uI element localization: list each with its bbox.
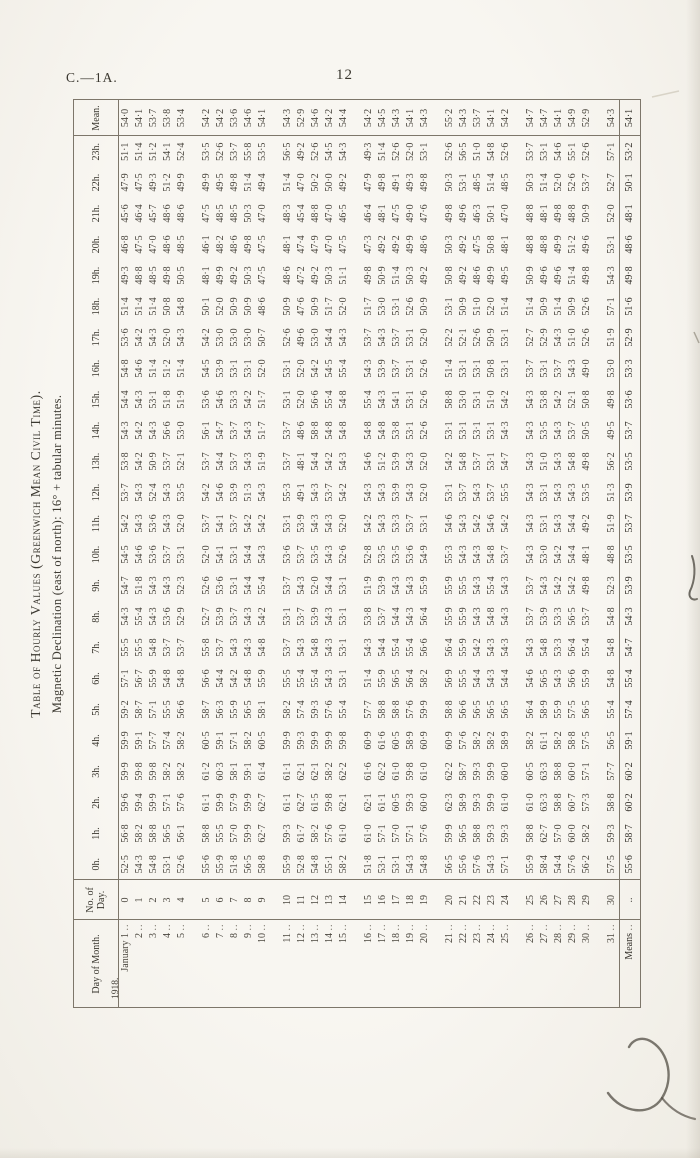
- value-cell: 53·6: [147, 508, 161, 539]
- rotated-table-region: Table of Hourly Values (Greenwich Mean C…: [25, 99, 641, 1009]
- value-cell: 52·0: [418, 446, 432, 477]
- value-cell: 51·4: [242, 167, 256, 198]
- value-cell: 47·5: [337, 229, 351, 260]
- day-label: 20 ..: [418, 920, 432, 1008]
- group-gap: [189, 100, 200, 1008]
- rotated-table-inner: Table of Hourly Values (Greenwich Mean C…: [25, 99, 641, 1009]
- value-cell: 54·3: [418, 100, 432, 136]
- means-value-cell: 51·6: [620, 291, 641, 322]
- value-cell: 45·6: [119, 198, 134, 229]
- day-label: 22 ..: [457, 920, 471, 1008]
- value-cell: 59·9: [323, 725, 337, 756]
- value-cell: 54·3: [161, 508, 175, 539]
- value-cell: 49·3: [147, 167, 161, 198]
- value-cell: 51·4: [133, 136, 147, 167]
- value-cell: 54·1: [133, 100, 147, 136]
- column-header: 8h.: [74, 601, 119, 632]
- value-cell: 52·6: [200, 570, 214, 601]
- value-cell: 46·1: [200, 229, 214, 260]
- value-cell: 62·7: [256, 818, 270, 849]
- day-label: 15 ..: [337, 920, 351, 1008]
- means-value-cell: 53·5: [620, 446, 641, 477]
- pencil-mark: [652, 91, 679, 97]
- value-cell: 51·4: [175, 353, 189, 384]
- leader-dots: ..: [486, 924, 497, 931]
- value-cell: 54·3: [499, 632, 513, 663]
- value-cell: 48·1: [281, 229, 295, 260]
- value-cell: 53·3: [552, 601, 566, 632]
- value-cell: 53·6: [147, 539, 161, 570]
- value-cell: 55·4: [337, 694, 351, 725]
- value-cell: 56·5: [499, 694, 513, 725]
- means-value-cell: 48·1: [620, 198, 641, 229]
- value-cell: 55·9: [443, 570, 457, 601]
- value-cell: 49·0: [404, 198, 418, 229]
- no-of-day: 22: [471, 880, 485, 920]
- leader-dots: ..: [419, 924, 430, 931]
- value-cell: 53·7: [161, 446, 175, 477]
- value-cell: 58·8: [552, 756, 566, 787]
- value-cell: 51·3: [242, 477, 256, 508]
- value-cell: 53·1: [281, 508, 295, 539]
- value-cell: 50·7: [256, 322, 270, 353]
- value-cell: 52·3: [175, 570, 189, 601]
- value-cell: 59·2: [119, 694, 134, 725]
- value-cell: 54·8: [337, 415, 351, 446]
- means-value-cell: 49·8: [620, 260, 641, 291]
- value-cell: 53·7: [390, 322, 404, 353]
- value-cell: 54·7: [499, 446, 513, 477]
- value-cell: 61·0: [524, 787, 538, 818]
- value-cell: 53·1: [147, 384, 161, 415]
- value-cell: 54·3: [471, 570, 485, 601]
- value-cell: 56·8: [119, 818, 134, 849]
- day-row: 7 ..655·955·559·960·359·156·354·453·753·…: [214, 100, 228, 1008]
- value-cell: 54·3: [281, 100, 295, 136]
- leader-dots: ..: [472, 924, 483, 931]
- value-cell: 53·7: [281, 570, 295, 601]
- no-of-day: 30: [605, 880, 620, 920]
- value-cell: 46·4: [133, 198, 147, 229]
- value-cell: 49·6: [552, 260, 566, 291]
- day-row: 6 ..555·658·861·161·260·558·756·655·852·…: [200, 100, 214, 1008]
- value-cell: 46·5: [337, 198, 351, 229]
- value-cell: 51·4: [566, 260, 580, 291]
- value-cell: 52·1: [566, 384, 580, 415]
- day-label: 23 ..: [471, 920, 485, 1008]
- no-of-day: 23: [485, 880, 499, 920]
- value-cell: 56·5: [457, 136, 471, 167]
- value-cell: 56·4: [566, 632, 580, 663]
- day-row: 10 ..958·862·762·761·460·558·155·954·854…: [256, 100, 270, 1008]
- value-cell: 51·4: [524, 291, 538, 322]
- day-row: 21 ..2056·559·962·362·260·958·856·956·45…: [443, 100, 457, 1008]
- value-cell: 56·5: [605, 725, 620, 756]
- value-cell: 53·0: [214, 322, 228, 353]
- value-cell: 55·4: [337, 353, 351, 384]
- value-cell: 46·8: [119, 229, 134, 260]
- value-cell: 48·5: [175, 229, 189, 260]
- value-cell: 54·8: [309, 632, 323, 663]
- value-cell: 56·4: [404, 663, 418, 694]
- no-of-day: 20: [443, 880, 457, 920]
- value-cell: 54·1: [552, 100, 566, 136]
- value-cell: 48·5: [228, 198, 242, 229]
- value-cell: 53·1: [337, 663, 351, 694]
- value-cell: 54·2: [552, 570, 566, 601]
- means-value-cell: 54·1: [620, 100, 641, 136]
- column-header: Mean.: [74, 100, 119, 136]
- value-cell: 54·8: [147, 632, 161, 663]
- value-cell: 49·9: [404, 229, 418, 260]
- value-cell: 54·3: [295, 570, 309, 601]
- day-label: 10 ..: [256, 920, 270, 1008]
- value-cell: 54·8: [605, 632, 620, 663]
- leader-dots: ..: [134, 924, 145, 931]
- value-cell: 50·9: [538, 291, 552, 322]
- value-cell: 57·1: [119, 663, 134, 694]
- value-cell: 48·8: [524, 198, 538, 229]
- column-header: 22h.: [74, 167, 119, 198]
- value-cell: 48·8: [538, 229, 552, 260]
- value-cell: 56·6: [200, 663, 214, 694]
- no-of-day: 25: [524, 880, 538, 920]
- value-cell: 59·9: [443, 818, 457, 849]
- value-cell: 54·3: [323, 539, 337, 570]
- value-cell: 54·3: [552, 322, 566, 353]
- value-cell: 53·7: [524, 570, 538, 601]
- value-cell: 54·7: [538, 100, 552, 136]
- day-label: 30 ..: [580, 920, 594, 1008]
- value-cell: 50·9: [418, 291, 432, 322]
- value-cell: 58·8: [200, 818, 214, 849]
- value-cell: 60·9: [362, 725, 376, 756]
- value-cell: 53·7: [580, 167, 594, 198]
- value-cell: 53·7: [295, 601, 309, 632]
- value-cell: 59·9: [485, 756, 499, 787]
- leader-dots: ..: [338, 924, 349, 931]
- value-cell: 53·6: [281, 539, 295, 570]
- value-cell: 49·8: [580, 570, 594, 601]
- value-cell: 58·7: [200, 694, 214, 725]
- value-cell: 59·3: [309, 694, 323, 725]
- value-cell: 48·2: [214, 229, 228, 260]
- value-cell: 57·1: [605, 291, 620, 322]
- value-cell: 59·8: [147, 756, 161, 787]
- value-cell: 54·3: [309, 508, 323, 539]
- value-cell: 48·6: [175, 198, 189, 229]
- value-cell: 58·2: [323, 756, 337, 787]
- value-cell: 54·3: [119, 601, 134, 632]
- value-cell: 58·9: [404, 725, 418, 756]
- value-cell: 50·9: [457, 291, 471, 322]
- value-cell: 49·9: [485, 260, 499, 291]
- value-cell: 60·7: [566, 787, 580, 818]
- value-cell: 57·6: [175, 787, 189, 818]
- value-cell: 62·2: [376, 756, 390, 787]
- value-cell: 53·7: [228, 415, 242, 446]
- value-cell: 56·2: [605, 446, 620, 477]
- value-cell: 55·4: [390, 632, 404, 663]
- day-row: 30 ..2956·258·257·357·157·556·555·955·45…: [580, 100, 594, 1008]
- value-cell: 53·7: [281, 415, 295, 446]
- means-value-cell: 60·2: [620, 787, 641, 818]
- value-cell: 53·8: [362, 601, 376, 632]
- value-cell: 52·0: [295, 384, 309, 415]
- value-cell: 58·2: [175, 756, 189, 787]
- value-cell: 53·9: [390, 446, 404, 477]
- value-cell: 53·0: [538, 539, 552, 570]
- value-cell: 54·5: [323, 353, 337, 384]
- value-cell: 52·6: [499, 136, 513, 167]
- value-cell: 47·5: [200, 198, 214, 229]
- day-label: 26 ..: [524, 920, 538, 1008]
- leader-dots: ..: [525, 924, 536, 931]
- no-of-day: 19: [418, 880, 432, 920]
- value-cell: 54·3: [133, 477, 147, 508]
- value-cell: 48·6: [256, 291, 270, 322]
- value-cell: 54·4: [552, 849, 566, 880]
- value-cell: 50·8: [485, 353, 499, 384]
- scanned-document-page: { "page": { "doc_ref": "C.—1A.", "page_n…: [0, 0, 700, 1158]
- value-cell: 49·3: [119, 260, 134, 291]
- value-cell: 57·6: [418, 818, 432, 849]
- means-value-cell: 53·9: [620, 477, 641, 508]
- scan-edge-shadow: [0, 1148, 700, 1158]
- column-header: 15h.: [74, 384, 119, 415]
- value-cell: 54·3: [362, 353, 376, 384]
- value-cell: 57·1: [605, 136, 620, 167]
- value-cell: 56·2: [580, 849, 594, 880]
- value-cell: 47·0: [323, 198, 337, 229]
- value-cell: 51·8: [161, 384, 175, 415]
- value-cell: 54·3: [376, 477, 390, 508]
- value-cell: 58·1: [256, 694, 270, 725]
- value-cell: 62·7: [256, 787, 270, 818]
- no-of-day: 17: [390, 880, 404, 920]
- value-cell: 57·6: [323, 818, 337, 849]
- value-cell: 48·1: [499, 229, 513, 260]
- column-header: 4h.: [74, 725, 119, 756]
- day-label: 17 ..: [376, 920, 390, 1008]
- value-cell: 58·9: [457, 787, 471, 818]
- value-cell: 54·4: [566, 508, 580, 539]
- value-cell: 54·2: [499, 384, 513, 415]
- column-header: 5h.: [74, 694, 119, 725]
- value-cell: 53·3: [390, 508, 404, 539]
- value-cell: 52·9: [295, 100, 309, 136]
- value-cell: 52·0: [214, 291, 228, 322]
- value-cell: 54·4: [566, 539, 580, 570]
- value-cell: 54·8: [175, 663, 189, 694]
- day-label: 2 ..: [133, 920, 147, 1008]
- value-cell: 55·9: [214, 849, 228, 880]
- value-cell: 50·1: [200, 291, 214, 322]
- value-cell: 49·2: [228, 260, 242, 291]
- value-cell: 50·3: [242, 260, 256, 291]
- day-row: 24 ..2354·359·359·959·958·256·554·354·35…: [485, 100, 499, 1008]
- hourly-values-table: Day of Month.No. of Day.0h.1h.2h.3h.4h.5…: [73, 100, 641, 1009]
- leader-dots: ..: [324, 924, 335, 931]
- value-cell: 54·3: [147, 570, 161, 601]
- value-cell: 55·5: [457, 570, 471, 601]
- value-cell: 59·9: [119, 756, 134, 787]
- value-cell: 49·9: [200, 167, 214, 198]
- day-label: 19 ..: [404, 920, 418, 1008]
- leader-dots: ..: [176, 924, 187, 931]
- value-cell: 54·8: [566, 446, 580, 477]
- handwritten-mark: [689, 556, 697, 600]
- leader-dots: ..: [624, 924, 635, 931]
- value-cell: 53·9: [376, 570, 390, 601]
- value-cell: 53·7: [295, 539, 309, 570]
- value-cell: 53·1: [443, 415, 457, 446]
- value-cell: 57·5: [580, 725, 594, 756]
- value-cell: 54·3: [457, 539, 471, 570]
- day-row: 23 ..2257·658·859·359·358·256·554·454·25…: [471, 100, 485, 1008]
- value-cell: 51·4: [133, 291, 147, 322]
- value-cell: 48·1: [200, 260, 214, 291]
- value-cell: 52·7: [524, 322, 538, 353]
- column-header: 21h.: [74, 198, 119, 229]
- column-header: 10h.: [74, 539, 119, 570]
- value-cell: 53·7: [485, 477, 499, 508]
- no-of-day: 3: [161, 880, 175, 920]
- value-cell: 61·2: [200, 756, 214, 787]
- value-cell: 57·1: [580, 756, 594, 787]
- value-cell: 60·0: [566, 756, 580, 787]
- value-cell: 49·4: [256, 167, 270, 198]
- value-cell: 58·2: [242, 725, 256, 756]
- value-cell: 61·1: [538, 725, 552, 756]
- day-row: 22 ..2155·656·558·958·757·656·655·555·95…: [457, 100, 471, 1008]
- value-cell: 54·9: [566, 100, 580, 136]
- value-cell: 52·6: [418, 384, 432, 415]
- value-cell: 53·1: [471, 384, 485, 415]
- column-header: 1h.: [74, 818, 119, 849]
- value-cell: 52·1: [457, 322, 471, 353]
- value-cell: 59·9: [281, 725, 295, 756]
- value-cell: 57·4: [161, 725, 175, 756]
- value-cell: 56·5: [485, 694, 499, 725]
- value-cell: 54·3: [524, 415, 538, 446]
- column-header: 2h.: [74, 787, 119, 818]
- value-cell: 53·9: [295, 508, 309, 539]
- value-cell: 54·3: [119, 415, 134, 446]
- value-cell: 52·9: [538, 322, 552, 353]
- value-cell: 53·0: [376, 291, 390, 322]
- value-cell: 53·1: [404, 322, 418, 353]
- handwritten-mark: [608, 1039, 669, 1110]
- value-cell: 59·8: [404, 756, 418, 787]
- value-cell: 49·8: [242, 229, 256, 260]
- value-cell: 47·0: [147, 229, 161, 260]
- value-cell: 45·7: [147, 198, 161, 229]
- value-cell: 54·8: [256, 632, 270, 663]
- value-cell: 54·8: [457, 446, 471, 477]
- value-cell: 48·6: [161, 229, 175, 260]
- value-cell: 54·3: [457, 100, 471, 136]
- value-cell: 54·8: [485, 136, 499, 167]
- value-cell: 54·4: [309, 446, 323, 477]
- value-cell: 58·1: [228, 756, 242, 787]
- value-cell: 53·1: [228, 353, 242, 384]
- value-cell: 47·6: [418, 198, 432, 229]
- value-cell: 61·0: [337, 818, 351, 849]
- value-cell: 54·3: [175, 322, 189, 353]
- value-cell: 50·8: [580, 384, 594, 415]
- value-cell: 53·6: [228, 100, 242, 136]
- value-cell: 50·8: [161, 291, 175, 322]
- value-cell: 57·1: [161, 787, 175, 818]
- day-label: 4 ..: [161, 920, 175, 1008]
- day-label: 9 ..: [242, 920, 256, 1008]
- value-cell: 59·3: [605, 818, 620, 849]
- value-cell: 49·1: [390, 167, 404, 198]
- no-of-day: 12: [309, 880, 323, 920]
- value-cell: 62·7: [538, 818, 552, 849]
- column-header: 0h.: [74, 849, 119, 880]
- value-cell: 52·6: [580, 322, 594, 353]
- column-header: No. of Day.: [74, 880, 119, 920]
- value-cell: 53·1: [538, 136, 552, 167]
- value-cell: 53·7: [175, 632, 189, 663]
- value-cell: 52·6: [309, 136, 323, 167]
- value-cell: 55·4: [295, 663, 309, 694]
- day-row: 17 ..1653·157·161·162·261·658·855·954·45…: [376, 100, 390, 1008]
- value-cell: 61·1: [200, 787, 214, 818]
- means-value-cell: 53·7: [620, 415, 641, 446]
- no-of-day: 18: [404, 880, 418, 920]
- value-cell: 51·4: [376, 136, 390, 167]
- value-cell: 54·5: [200, 353, 214, 384]
- no-of-day: 11: [295, 880, 309, 920]
- value-cell: 49·8: [161, 260, 175, 291]
- value-cell: 53·1: [499, 353, 513, 384]
- value-cell: 54·3: [552, 446, 566, 477]
- value-cell: 53·1: [337, 570, 351, 601]
- value-cell: 50·3: [404, 260, 418, 291]
- leader-dots: ..: [310, 924, 321, 931]
- value-cell: 53·1: [538, 508, 552, 539]
- means-value-cell: 58·7: [620, 818, 641, 849]
- value-cell: 60·9: [418, 725, 432, 756]
- value-cell: 53·7: [471, 100, 485, 136]
- day-row: 29 ..2857·660·060·760·058·857·556·656·45…: [566, 100, 580, 1008]
- value-cell: 55·3: [443, 539, 457, 570]
- value-cell: 58·7: [457, 756, 471, 787]
- value-cell: 53·1: [228, 539, 242, 570]
- value-cell: 54·3: [404, 570, 418, 601]
- value-cell: 52·6: [580, 136, 594, 167]
- value-cell: 57·4: [295, 694, 309, 725]
- value-cell: 51·9: [605, 508, 620, 539]
- no-of-day: 29: [580, 880, 594, 920]
- column-header: 16h.: [74, 353, 119, 384]
- value-cell: 62·1: [309, 756, 323, 787]
- value-cell: 61·0: [499, 787, 513, 818]
- value-cell: 61·0: [362, 818, 376, 849]
- value-cell: 49·2: [309, 260, 323, 291]
- value-cell: 51·2: [161, 167, 175, 198]
- value-cell: 51·4: [119, 291, 134, 322]
- leader-dots: ..: [120, 924, 131, 931]
- value-cell: 60·5: [390, 787, 404, 818]
- value-cell: 48·8: [309, 198, 323, 229]
- value-cell: 47·2: [295, 260, 309, 291]
- no-of-day: 16: [376, 880, 390, 920]
- value-cell: 62·1: [337, 787, 351, 818]
